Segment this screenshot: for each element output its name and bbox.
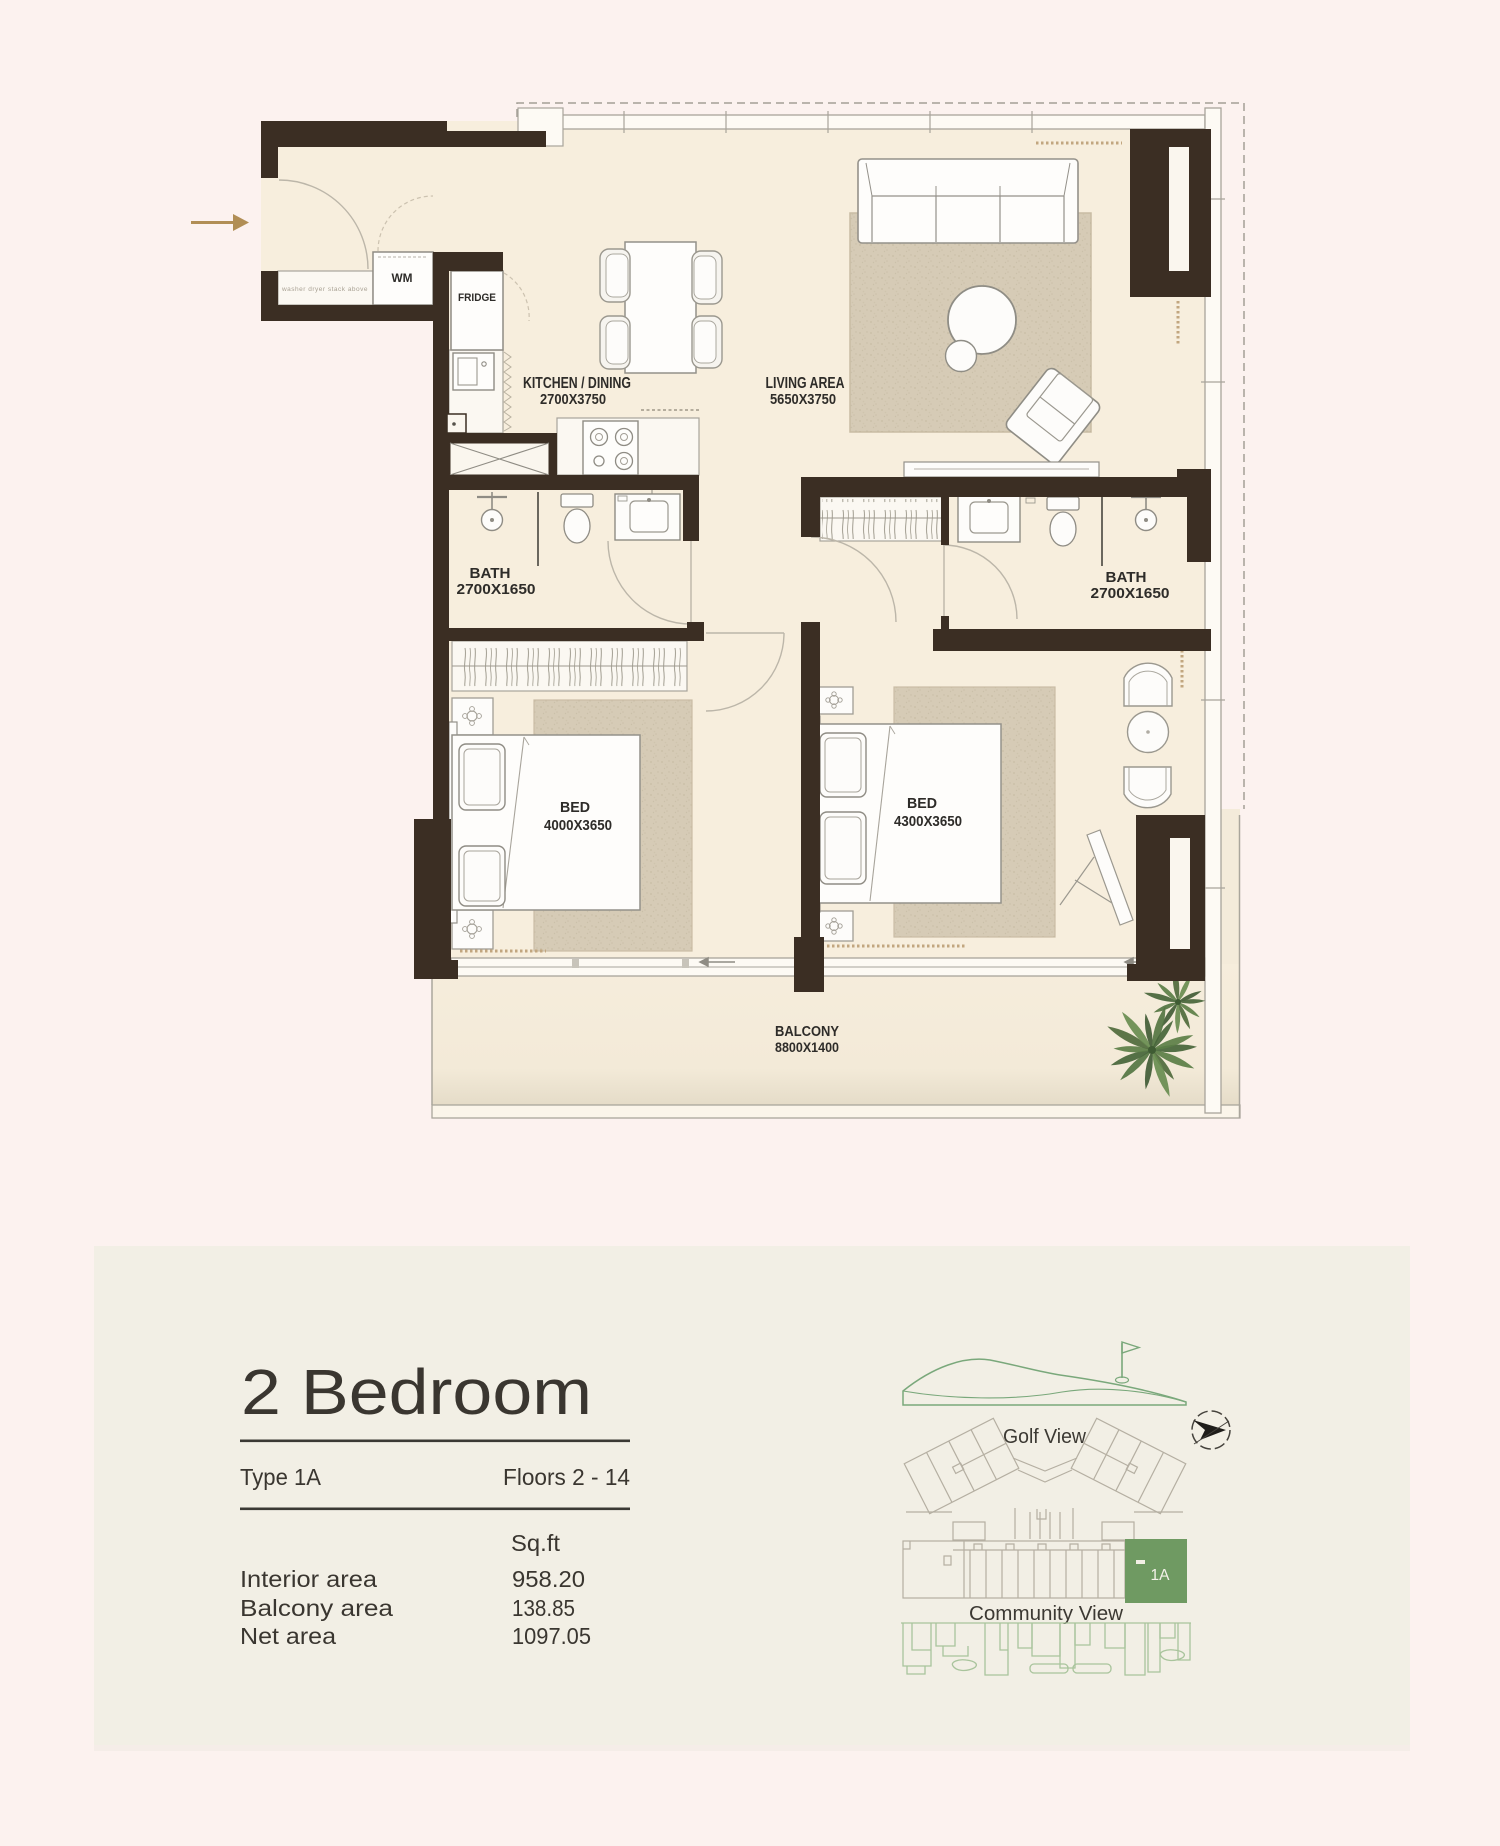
svg-text:138.85: 138.85 (512, 1595, 575, 1621)
svg-text:4000X3650: 4000X3650 (544, 818, 612, 834)
svg-text:Golf View: Golf View (1003, 1425, 1086, 1448)
svg-text:2700X1650: 2700X1650 (1091, 586, 1170, 602)
svg-text:2 Bedroom: 2 Bedroom (241, 1356, 592, 1428)
svg-text:5650X3750: 5650X3750 (770, 392, 836, 408)
svg-text:8800X1400: 8800X1400 (775, 1039, 839, 1055)
svg-text:BED: BED (560, 799, 590, 816)
svg-text:2700X3750: 2700X3750 (540, 392, 606, 408)
svg-text:WM: WM (392, 273, 413, 285)
svg-text:1A: 1A (1151, 1567, 1171, 1584)
svg-text:washer dryer stack above: washer dryer stack above (281, 286, 368, 293)
svg-text:958.20: 958.20 (512, 1566, 585, 1592)
svg-text:FRIDGE: FRIDGE (458, 292, 496, 304)
svg-text:Community View: Community View (969, 1602, 1123, 1625)
svg-text:Balcony area: Balcony area (240, 1595, 394, 1621)
svg-text:Sq.ft: Sq.ft (511, 1530, 560, 1556)
svg-text:4300X3650: 4300X3650 (894, 814, 962, 830)
svg-text:LIVING AREA: LIVING AREA (766, 375, 845, 392)
svg-text:2700X1650: 2700X1650 (457, 582, 536, 598)
svg-text:Net area: Net area (240, 1623, 337, 1649)
svg-text:Floors 2 - 14: Floors 2 - 14 (503, 1464, 630, 1490)
svg-text:KITCHEN / DINING: KITCHEN / DINING (523, 375, 631, 392)
svg-text:1097.05: 1097.05 (512, 1623, 591, 1649)
svg-text:Interior area: Interior area (240, 1566, 378, 1592)
svg-text:Type 1A: Type 1A (240, 1464, 321, 1490)
svg-text:BATH: BATH (470, 565, 511, 582)
svg-text:BATH: BATH (1106, 569, 1147, 586)
svg-text:BALCONY: BALCONY (775, 1024, 839, 1040)
svg-text:BED: BED (907, 795, 937, 812)
